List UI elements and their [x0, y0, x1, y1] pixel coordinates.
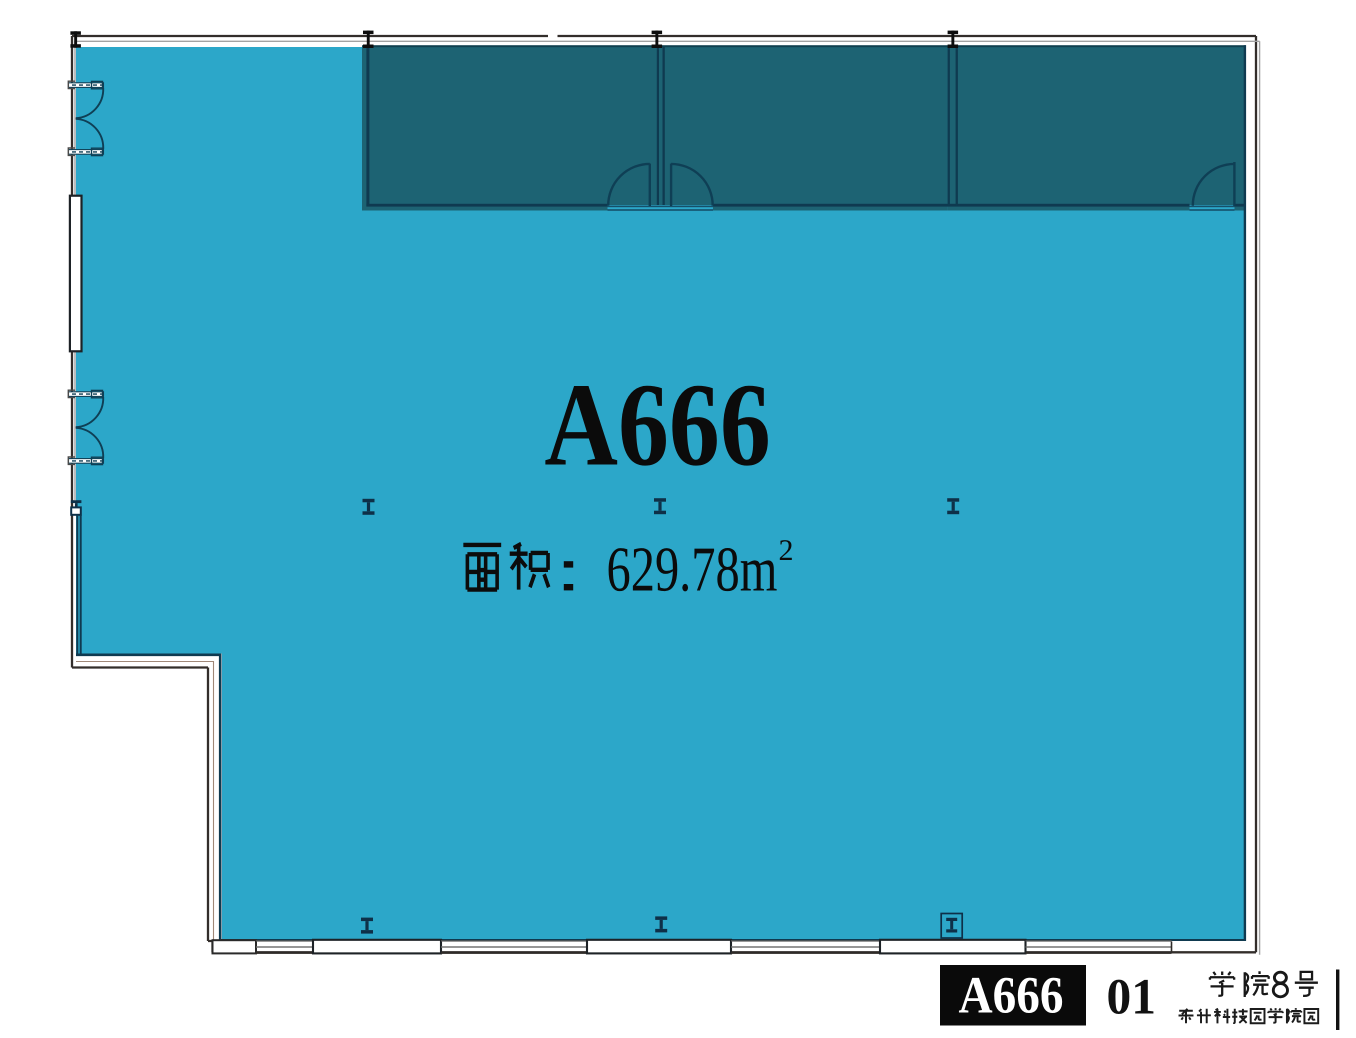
svg-text:A666: A666: [544, 359, 770, 491]
svg-text:2: 2: [779, 534, 794, 567]
svg-text:A666: A666: [959, 967, 1064, 1025]
svg-text:629.78m: 629.78m: [607, 534, 778, 605]
svg-text:01: 01: [1107, 970, 1156, 1026]
